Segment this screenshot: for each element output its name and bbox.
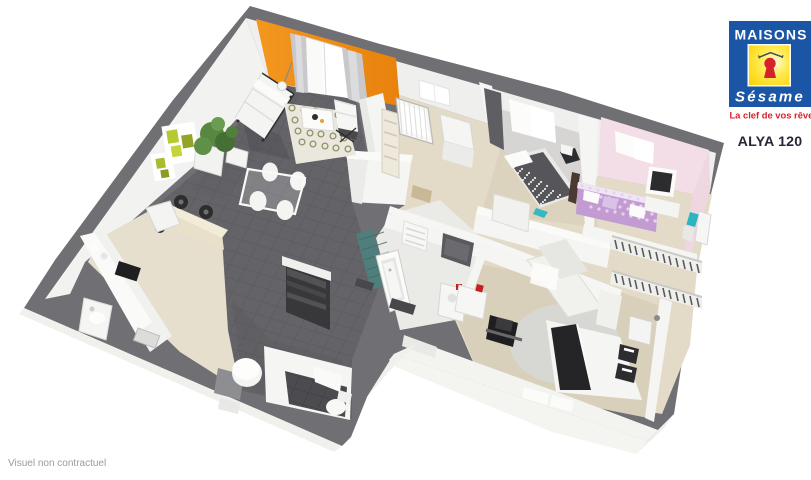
svg-text:ALYA 120: ALYA 120 [738, 134, 803, 150]
svg-text:Visuel non contractuel: Visuel non contractuel [8, 458, 106, 469]
svg-text:La clef de vos rêves: La clef de vos rêves [729, 110, 811, 121]
svg-text:MAISONS: MAISONS [734, 27, 807, 43]
svg-text:Sésame: Sésame [735, 89, 805, 106]
